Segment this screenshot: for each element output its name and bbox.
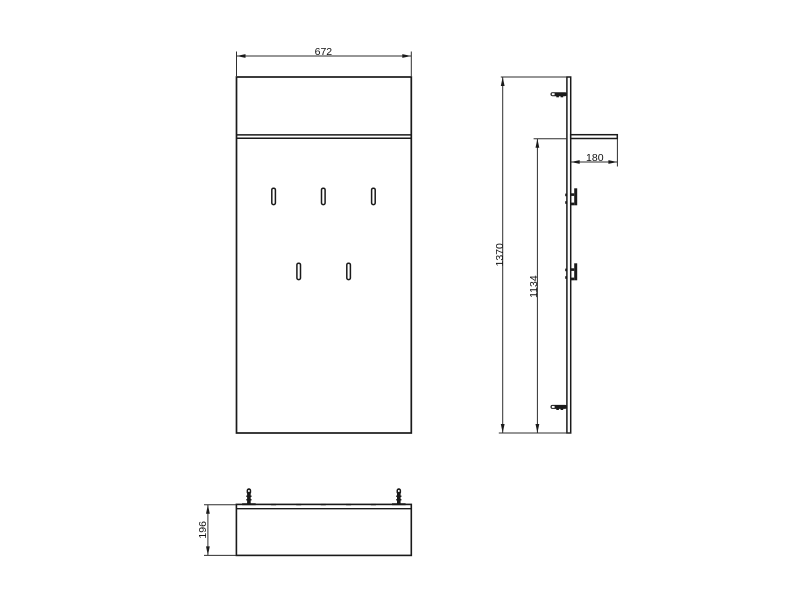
- svg-text:1134: 1134: [528, 275, 540, 298]
- svg-text:1370: 1370: [494, 243, 506, 267]
- svg-text:180: 180: [586, 152, 604, 164]
- svg-text:196: 196: [197, 521, 209, 539]
- svg-text:672: 672: [315, 46, 333, 58]
